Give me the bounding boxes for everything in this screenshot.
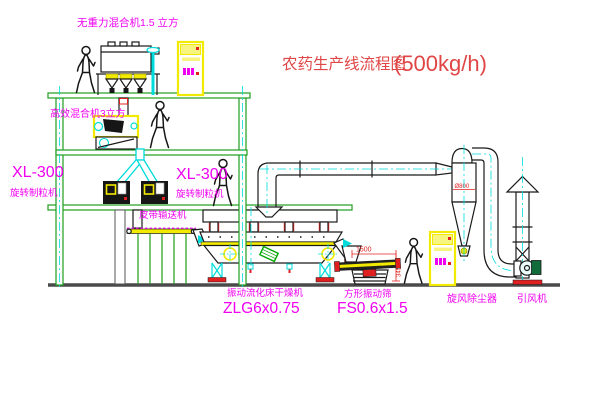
floor-slab-mid — [56, 150, 247, 155]
high-efficiency-mixer — [94, 98, 138, 149]
fluid-bed-dryer — [200, 207, 353, 282]
mixer-mid-label: 高效混合机3立方 — [50, 107, 126, 120]
rotary-granulator-left — [103, 181, 130, 204]
induced-draft-fan — [513, 261, 542, 285]
granulator-right-model: XL-300 — [176, 166, 228, 183]
dryer-ports — [209, 222, 329, 232]
belt-conveyor-label: 皮带输送机 — [139, 209, 187, 221]
floor-slab-top — [48, 93, 250, 98]
cyclone-label: 旋风除尘器 — [447, 292, 497, 305]
mixer-top-label: 无重力混合机1.5 立方 — [77, 16, 179, 29]
sieve-model: FS0.6x1.5 — [337, 300, 408, 317]
gravity-free-mixer — [96, 42, 160, 95]
worker-figure — [151, 102, 170, 148]
discharge-cones — [106, 74, 146, 93]
worker-figure — [77, 47, 96, 93]
worker-figure — [404, 238, 422, 283]
sieve-length-dim: 1500 — [356, 247, 372, 254]
fan-label: 引风机 — [517, 292, 547, 305]
granulator-right-label: 旋转制粒机 — [176, 188, 224, 200]
drawing-capacity: (500kg/h) — [394, 51, 487, 76]
cad-canvas: Ø800 1500 345 — [0, 0, 600, 403]
belt-conveyor — [115, 210, 209, 284]
control-cabinet — [430, 232, 455, 285]
floor-slab-lower — [48, 205, 352, 210]
dryer-model: ZLG6x0.75 — [223, 300, 300, 317]
process-flow-drawing: Ø800 1500 345 — [0, 0, 600, 403]
dryer-label: 振动流化床干燥机 — [227, 287, 304, 299]
control-cabinet — [178, 42, 203, 95]
granulator-left-model: XL-300 — [12, 164, 64, 181]
dryer-supports — [212, 263, 330, 278]
sieve-label: 方形振动筛 — [344, 288, 392, 300]
granulator-left-label: 旋转制粒机 — [10, 187, 58, 199]
drawing-title: 农药生产线流程图 — [282, 55, 406, 73]
rotary-granulator-right — [141, 181, 168, 204]
cyclone-outlet-duct — [472, 148, 523, 277]
